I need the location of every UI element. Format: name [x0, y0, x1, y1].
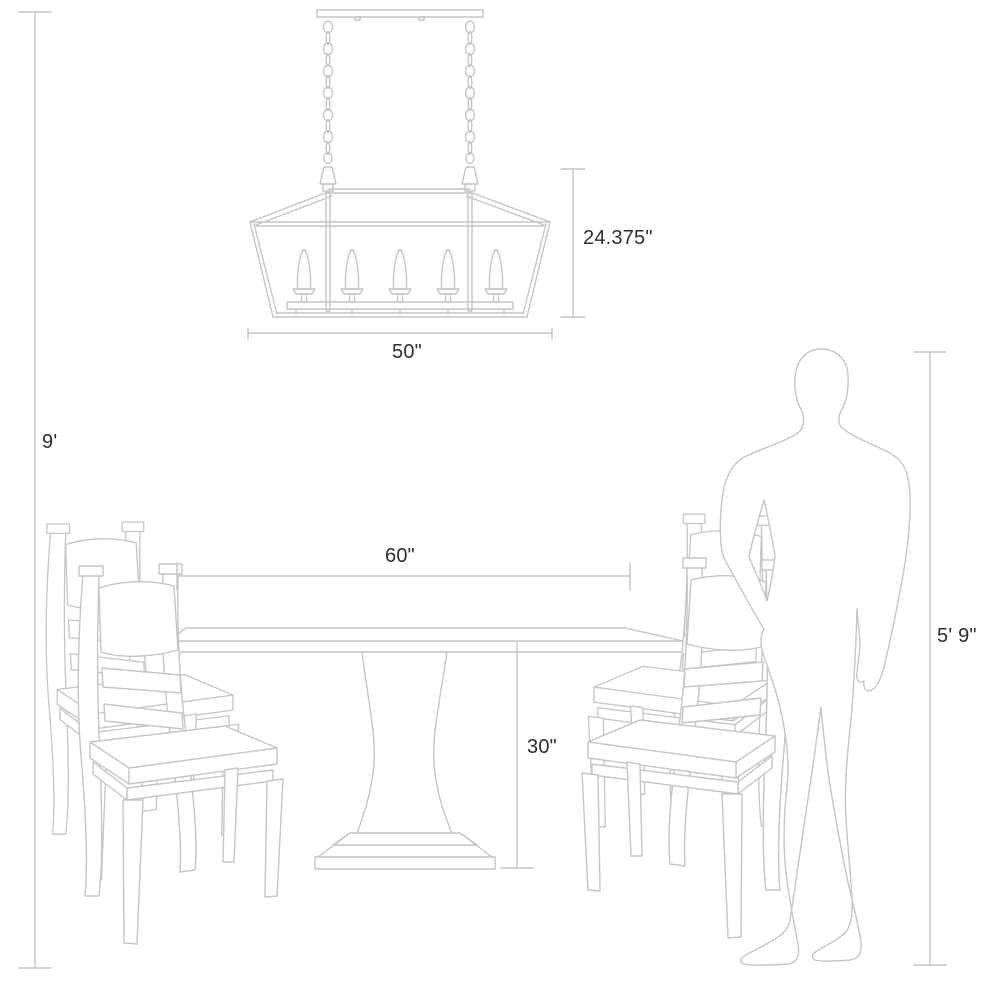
fixture-width-label: 50": [367, 341, 447, 363]
dimension-diagram: 9' 24.375" 50" 60" 30" 5' 9": [0, 0, 1000, 1000]
candle: [293, 250, 315, 302]
chandelier-chain-left: [324, 21, 333, 164]
fixture-height-label: 24.375": [583, 227, 653, 249]
candle: [485, 250, 507, 302]
person-height-dimension-line: [914, 352, 946, 965]
candle: [437, 250, 459, 302]
chandelier-canopy: [317, 10, 483, 20]
chandelier-cage: [250, 189, 550, 317]
chandelier: [250, 10, 550, 317]
chandelier-candle-bar: [287, 302, 513, 314]
person-height-label: 5' 9": [937, 625, 977, 647]
ceiling-height-dimension-line: [19, 12, 51, 968]
fixture-width-dimension-line: [248, 328, 552, 339]
table-top: [169, 628, 683, 652]
table-width-dimension-line: [177, 563, 630, 590]
diagram-line-art: [0, 0, 1000, 1000]
chandelier-chain-right: [466, 21, 475, 164]
chandelier-candles: [293, 250, 507, 302]
chair-front-left: [78, 564, 283, 944]
ceiling-height-label: 9': [42, 431, 57, 453]
candle: [389, 250, 411, 302]
candle: [341, 250, 363, 302]
table-height-label: 30": [527, 736, 557, 758]
chandelier-finial-right: [462, 167, 478, 191]
table-pedestal: [315, 652, 495, 869]
fixture-height-dimension-line: [561, 169, 585, 317]
chandelier-finial-left: [320, 167, 336, 191]
table-width-label: 60": [360, 545, 440, 567]
